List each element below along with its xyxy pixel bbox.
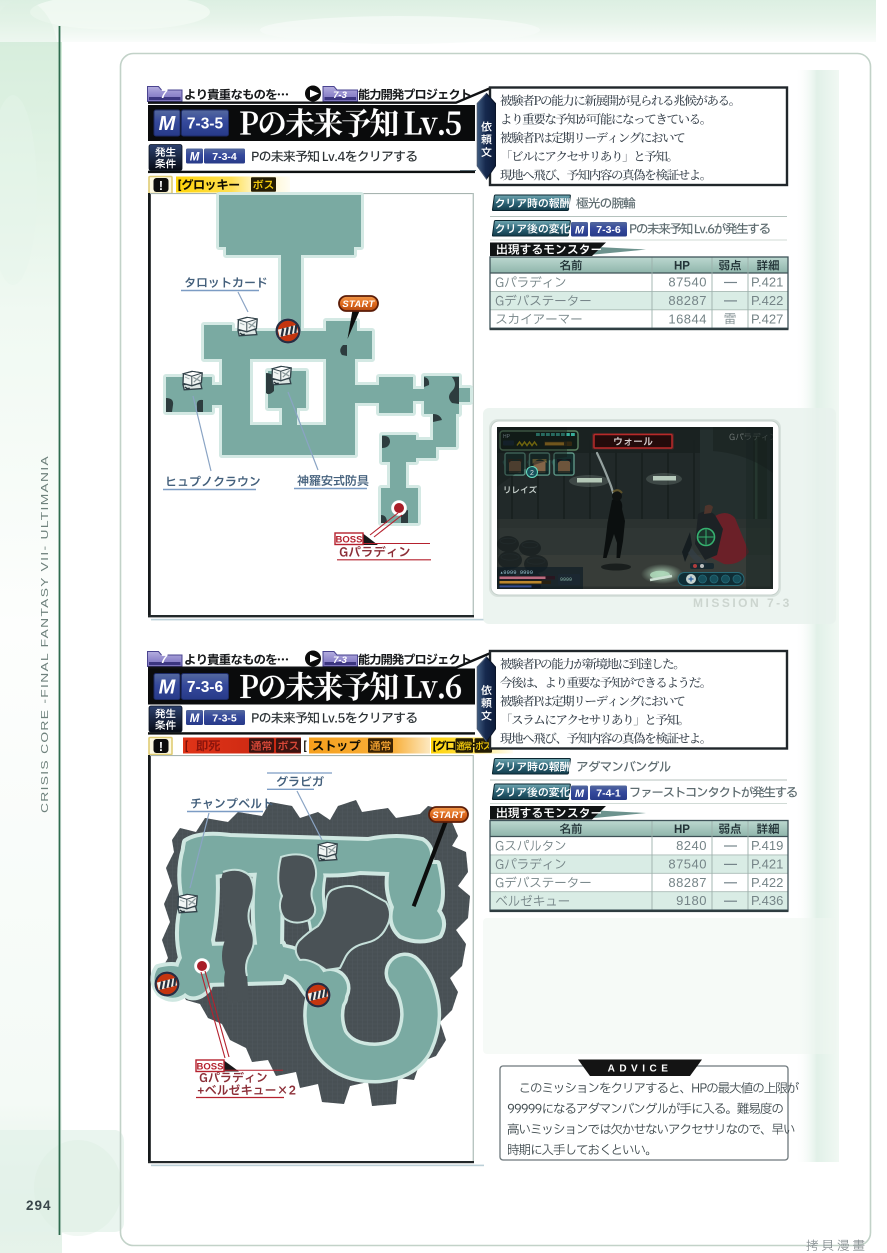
svg-text:P.419: P.419 <box>751 838 783 853</box>
svg-text:7-4-1: 7-4-1 <box>596 788 621 800</box>
svg-text:88287: 88287 <box>668 293 707 308</box>
svg-text:BOSS: BOSS <box>336 535 363 546</box>
svg-text:87540: 87540 <box>668 856 707 871</box>
svg-text:P.421: P.421 <box>751 275 783 290</box>
svg-text:7-3-5: 7-3-5 <box>187 116 224 133</box>
svg-text:9180: 9180 <box>676 893 707 908</box>
svg-text:M: M <box>159 113 177 135</box>
svg-text:P.421: P.421 <box>751 856 783 871</box>
svg-text:START: START <box>432 810 465 821</box>
svg-text:M: M <box>190 152 200 164</box>
svg-text:7-3-6: 7-3-6 <box>187 679 224 696</box>
svg-text:M: M <box>159 677 177 699</box>
svg-text:M: M <box>575 788 585 800</box>
svg-text:!: ! <box>159 740 163 754</box>
svg-text:P.427: P.427 <box>751 311 783 326</box>
svg-text:7-3-4: 7-3-4 <box>212 151 237 163</box>
svg-text:HP: HP <box>674 261 690 273</box>
svg-text:CRISIS CORE -FINAL FANTASY VII: CRISIS CORE -FINAL FANTASY VII- ULTIMANI… <box>39 455 51 813</box>
svg-text:88287: 88287 <box>668 875 707 890</box>
svg-text:ADVICE: ADVICE <box>608 1064 673 1075</box>
svg-text:P.422: P.422 <box>751 875 783 890</box>
svg-text:!: ! <box>159 179 163 193</box>
svg-text:BOSS: BOSS <box>197 1062 224 1073</box>
svg-text:294: 294 <box>26 1198 52 1213</box>
svg-text:P.422: P.422 <box>751 293 783 308</box>
svg-text:8240: 8240 <box>676 838 707 853</box>
svg-text:P.436: P.436 <box>751 893 783 908</box>
svg-text:7-3-6: 7-3-6 <box>596 224 621 236</box>
svg-text:87540: 87540 <box>668 275 707 290</box>
svg-text:7: 7 <box>161 654 168 666</box>
svg-text:START: START <box>342 299 375 310</box>
svg-text:M: M <box>575 225 585 237</box>
svg-text:HP: HP <box>674 824 690 836</box>
svg-text:7: 7 <box>161 89 168 101</box>
svg-text:M: M <box>190 713 200 725</box>
svg-text:7-3: 7-3 <box>333 655 347 666</box>
svg-text:7-3-5: 7-3-5 <box>212 713 237 725</box>
svg-text:MISSION 7-3: MISSION 7-3 <box>693 596 792 610</box>
svg-text:7-3: 7-3 <box>333 90 347 101</box>
svg-text:16844: 16844 <box>668 311 707 326</box>
